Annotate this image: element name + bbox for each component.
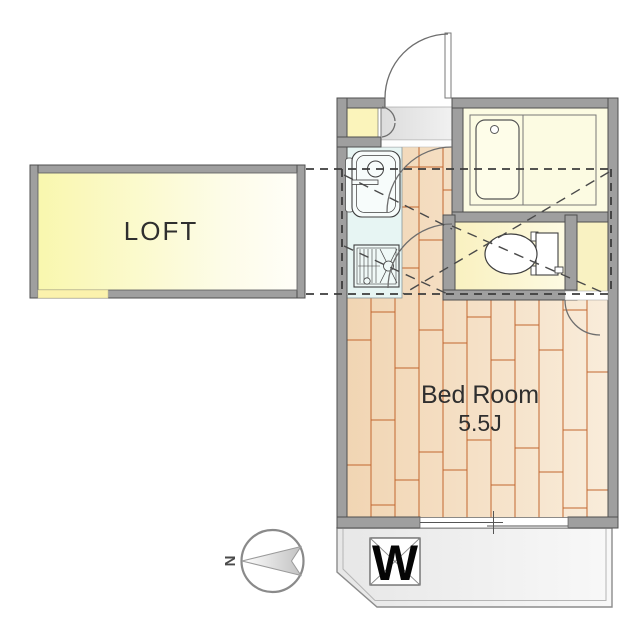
washing-machine-box: W (370, 535, 420, 591)
wall-bath-bottom (452, 212, 608, 222)
floor-plan-page: LOFT (0, 0, 639, 640)
shoe-cabinet (345, 107, 378, 137)
loft-room: LOFT (30, 165, 305, 298)
closet-room (577, 222, 608, 291)
compass-north-label: N (222, 556, 239, 567)
wall-toilet-closet (565, 215, 577, 292)
loft-wall-left (30, 165, 38, 298)
bathtub-drain (491, 126, 499, 134)
entrance-door (385, 33, 451, 98)
washing-machine-label: W (372, 535, 419, 591)
floor-plan-drawing: LOFT (0, 0, 639, 640)
closet-threshold (565, 291, 608, 300)
wall-bottom-right (568, 517, 618, 528)
wall-kitchen-top (337, 137, 381, 147)
closet-floor (577, 222, 608, 291)
faucet-lever (352, 180, 378, 185)
kitchen-sink (346, 151, 401, 217)
wall-top-right (452, 98, 618, 108)
entrance-door-leaf (445, 33, 451, 98)
bathroom (463, 108, 608, 212)
loft-opening (38, 290, 108, 298)
wall-bath-left (452, 108, 463, 222)
compass: N (222, 530, 304, 592)
bedroom-label: Bed Room (421, 381, 539, 409)
loft-label: LOFT (124, 216, 198, 246)
wall-toilet-left (443, 215, 455, 300)
entry-step (381, 140, 452, 147)
toilet (485, 232, 563, 275)
balcony: W (337, 528, 612, 607)
toilet-bowl (485, 234, 537, 274)
entrance-door-swing-arc (385, 34, 448, 98)
wall-toilet-bottom (443, 290, 577, 300)
wall-bottom-left (337, 517, 420, 528)
loft-wall-top (30, 165, 305, 173)
bedroom-size-label: 5.5J (458, 410, 501, 436)
wall-right (608, 98, 618, 528)
loft-wall-right (297, 165, 305, 298)
